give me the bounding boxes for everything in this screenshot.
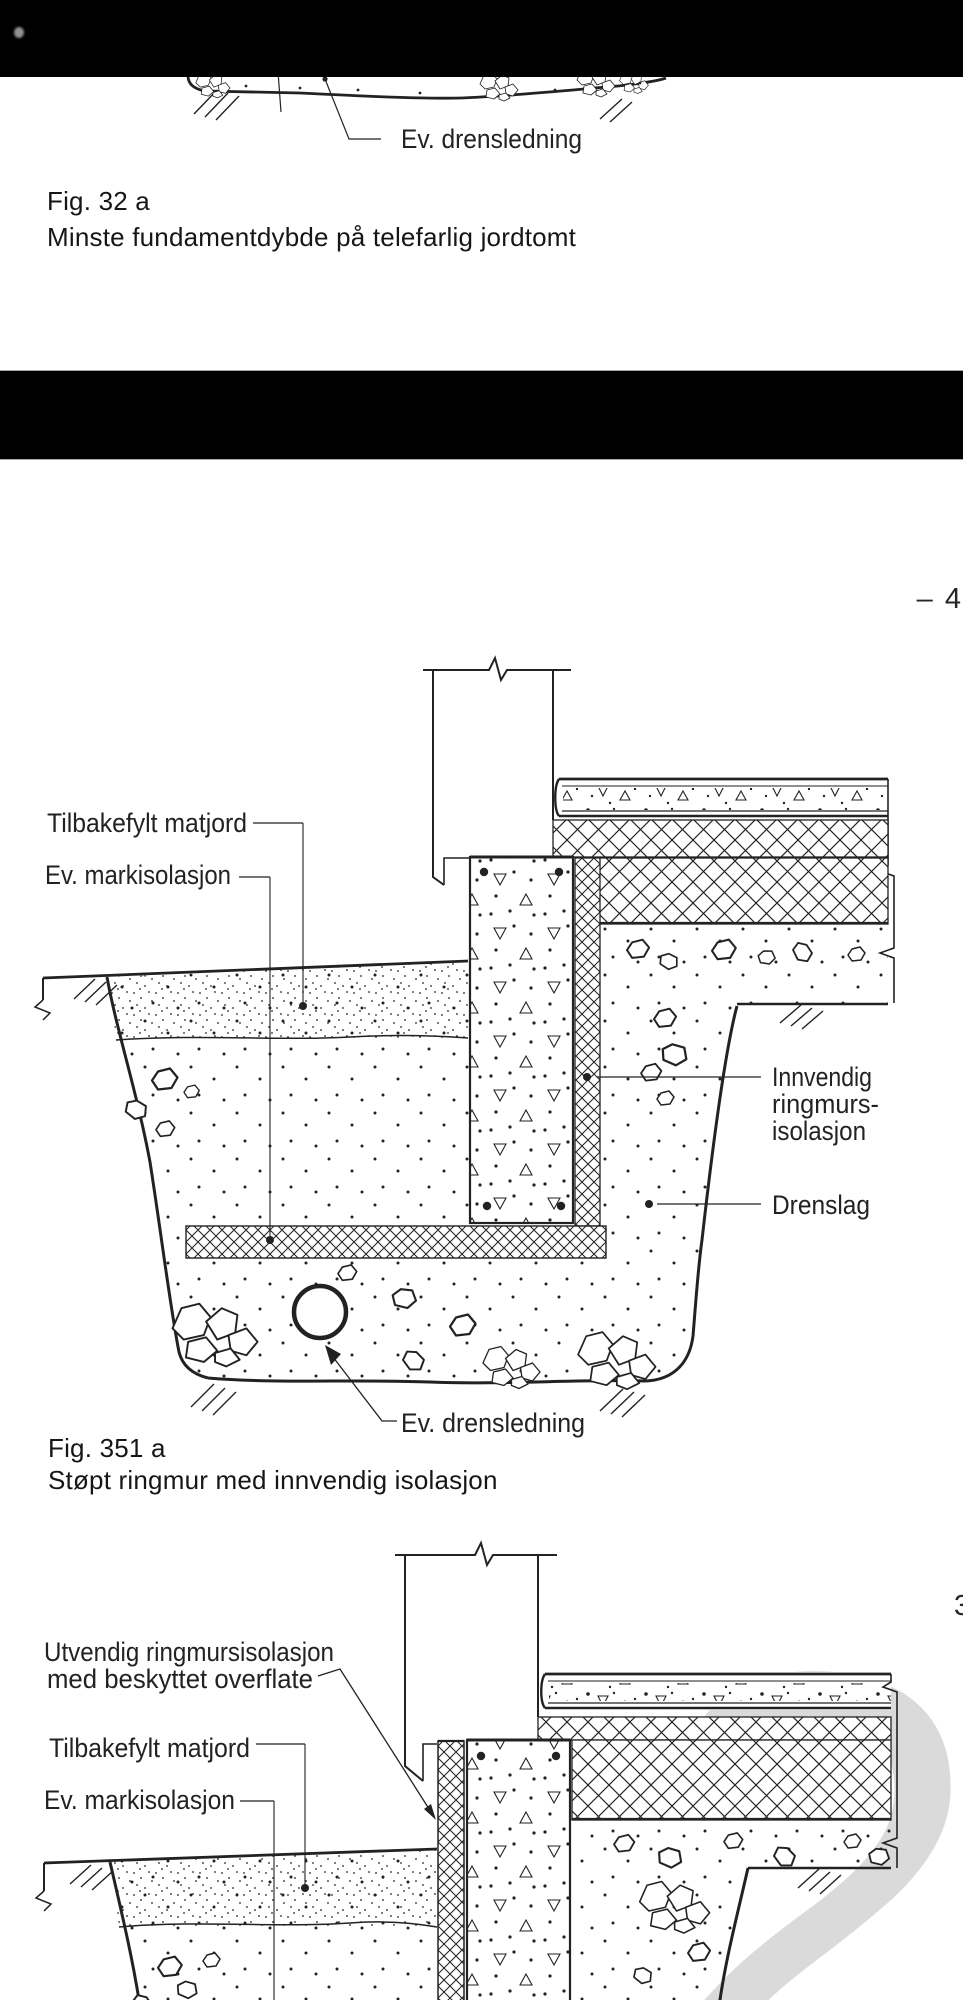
figure-351a-caption-line1: Fig. 351 a: [48, 1432, 498, 1464]
underslab-insulation-b: [538, 1717, 891, 1820]
page-number-top: – 4: [917, 583, 963, 616]
figure-32a-caption-line2: Minste fundamentdybde på telefarlig jord…: [47, 219, 576, 255]
figure-351a-caption-line2: Støpt ringmur med innvendig isolasjon: [48, 1464, 498, 1496]
timber-wall: [423, 658, 571, 885]
concrete-ringwall-b: [467, 1740, 570, 2000]
label-outer-insulation-2: med beskyttet overflate: [47, 1664, 313, 1694]
label-inner-insulation-1: Innvendig: [772, 1062, 872, 1092]
figure-351a-caption: Fig. 351 a Støpt ringmur med innvendig i…: [48, 1432, 498, 1496]
label-ground-insulation-a: Ev. markisolasjon: [45, 860, 231, 890]
edge-break-mark: [35, 1000, 50, 1020]
figure-32a-caption-line1: Fig. 32 a: [47, 183, 576, 219]
scan-artifact-dot: [14, 27, 24, 38]
scanned-document-page: 2: [0, 0, 963, 2000]
fig-351b-drawing: Utvendig ringmursisolasjon med beskyttet…: [36, 1543, 897, 2000]
concrete-floor-slab-b: [541, 1672, 891, 1710]
concrete-floor-slab: [555, 777, 888, 818]
label-backfill-topsoil-a: Tilbakefylt matjord: [47, 808, 247, 838]
label-inner-insulation-2: ringmurs-: [772, 1089, 879, 1119]
outer-ringwall-insulation-strip: [438, 1741, 464, 2000]
drain-pipe-circle: [294, 1286, 346, 1338]
label-ground-insulation-b: Ev. markisolasjon: [44, 1785, 235, 1815]
label-drain-pipe-top: Ev. drensledning: [401, 124, 582, 154]
concrete-ringwall: [470, 857, 573, 1223]
black-scan-bar-middle: [0, 370, 963, 460]
label-outer-insulation-1: Utvendig ringmursisolasjon: [44, 1637, 334, 1667]
ground-insulation-strip: [186, 1226, 606, 1258]
label-backfill-topsoil-b: Tilbakefylt matjord: [49, 1733, 250, 1763]
black-scan-bar-top: [0, 0, 963, 77]
fig-351a-drawing: Tilbakefylt matjord Ev. markisolasjon In…: [35, 658, 894, 1438]
figure-32a-caption: Fig. 32 a Minste fundamentdybde på telef…: [47, 183, 576, 255]
label-inner-insulation-3: isolasjon: [772, 1116, 866, 1146]
technical-drawings-canvas: Ev. drensledning: [0, 0, 963, 2000]
page-number-bottom-partial: 3: [954, 1590, 963, 1623]
inner-ringwall-insulation-strip: [575, 858, 600, 1226]
label-drainage-layer: Drenslag: [772, 1190, 870, 1220]
arrowhead-b: [424, 1804, 436, 1820]
underslab-insulation: [553, 820, 888, 924]
